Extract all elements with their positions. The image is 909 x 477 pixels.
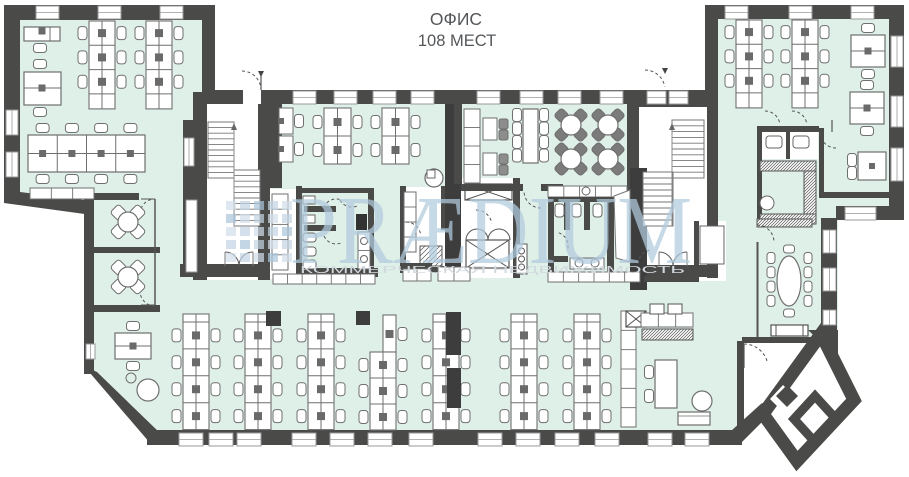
svg-text:КОММЕРЧЕСКАЯ НЕДВИЖИМОСТЬ: КОММЕРЧЕСКАЯ НЕДВИЖИМОСТЬ — [300, 264, 685, 276]
svg-text:108 МЕСТ: 108 МЕСТ — [418, 32, 496, 50]
svg-text:ОФИС: ОФИС — [430, 9, 482, 29]
